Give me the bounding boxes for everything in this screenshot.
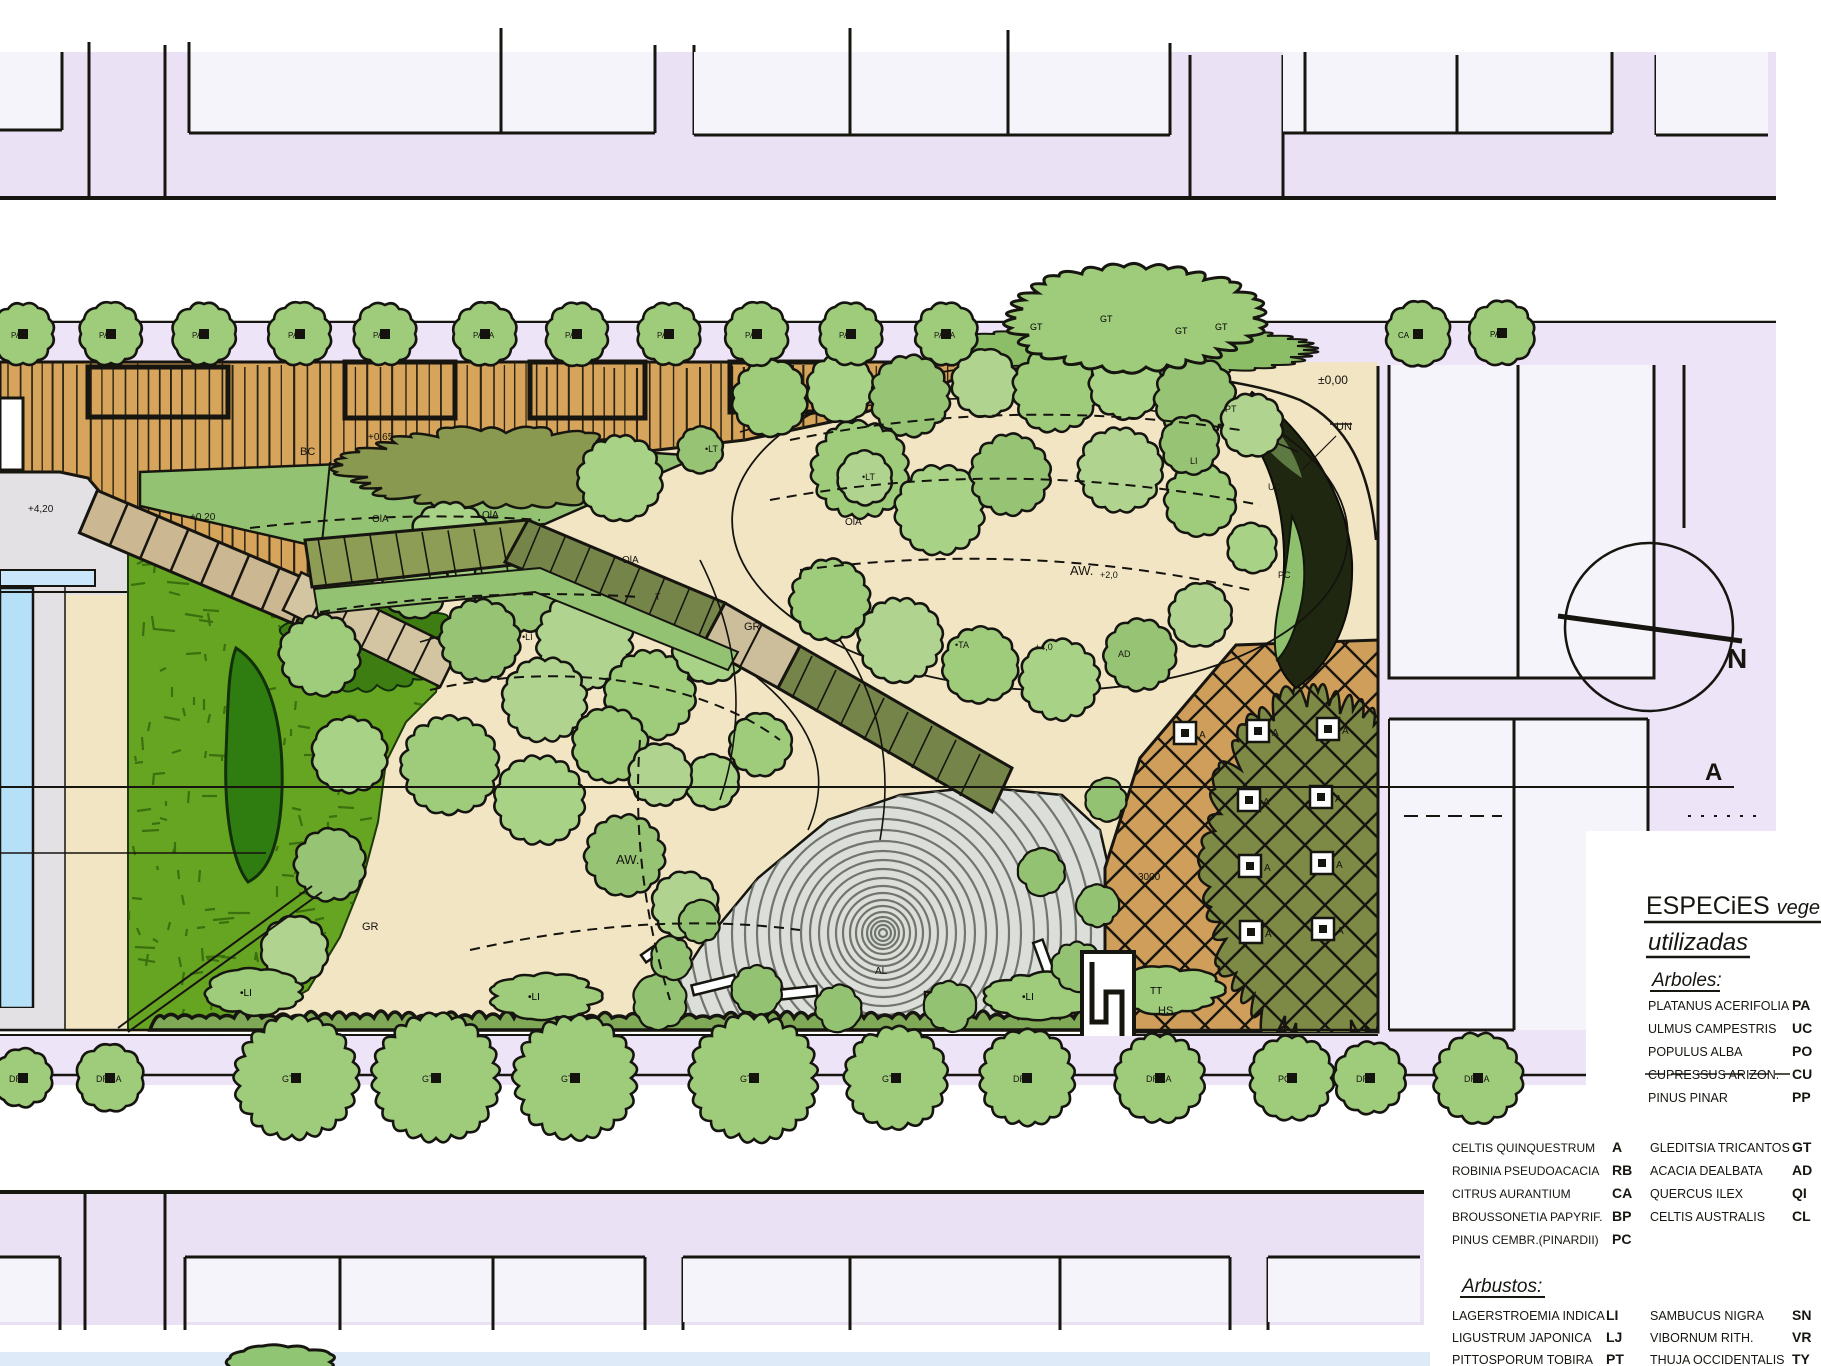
svg-text:GR: GR: [744, 621, 761, 633]
svg-text:SN: SN: [1792, 1307, 1811, 1323]
svg-text:GT: GT: [1100, 314, 1113, 324]
svg-text:VR: VR: [1792, 1329, 1811, 1345]
svg-text:PA: PA: [1490, 330, 1501, 339]
svg-text:GLEDITSIA TRICANTOS: GLEDITSIA TRICANTOS: [1650, 1141, 1790, 1155]
svg-text:THUJA OCCIDENTALIS: THUJA OCCIDENTALIS: [1650, 1353, 1785, 1366]
svg-text:AD: AD: [1792, 1162, 1812, 1178]
svg-text:CU: CU: [1792, 1066, 1812, 1082]
svg-text:HS: HS: [1158, 1005, 1173, 1017]
svg-text:T: T: [655, 592, 661, 602]
svg-text:OlA: OlA: [622, 555, 639, 566]
svg-text:PACA: PACA: [934, 331, 956, 340]
svg-text:A: A: [1263, 797, 1270, 808]
svg-text:Arbustos:: Arbustos:: [1461, 1276, 1542, 1297]
svg-text:PC: PC: [1612, 1231, 1631, 1247]
svg-text:PA: PA: [745, 331, 756, 340]
svg-text:DR: DR: [1013, 1074, 1026, 1084]
svg-text:UN: UN: [1336, 421, 1352, 433]
svg-text:PP: PP: [1792, 1089, 1811, 1105]
svg-text:utilizadas: utilizadas: [1648, 929, 1748, 956]
svg-text:VIBORNUM RITH.: VIBORNUM RITH.: [1650, 1331, 1753, 1345]
svg-text:CL: CL: [1792, 1208, 1811, 1224]
svg-text:PA: PA: [1792, 997, 1810, 1013]
svg-text:GT: GT: [882, 1074, 895, 1084]
svg-text:DR: DR: [9, 1074, 22, 1084]
svg-text:+0,65: +0,65: [368, 432, 394, 443]
svg-text:GT: GT: [422, 1074, 435, 1084]
svg-text:CA: CA: [1398, 331, 1410, 340]
svg-text:ACACIA DEALBATA: ACACIA DEALBATA: [1650, 1164, 1763, 1178]
svg-text:AW.: AW.: [1070, 563, 1093, 578]
svg-text:CITRUS AURANTIUM: CITRUS AURANTIUM: [1452, 1187, 1571, 1201]
svg-text:•TA: •TA: [955, 640, 969, 650]
svg-text:•LI: •LI: [1022, 992, 1034, 1003]
svg-text:PITTOSPORUM TOBIRA: PITTOSPORUM TOBIRA: [1452, 1353, 1594, 1366]
svg-text:A: A: [1335, 794, 1342, 805]
svg-text:A: A: [1705, 759, 1722, 786]
svg-text:OlA: OlA: [482, 510, 499, 521]
svg-text:LI: LI: [1606, 1307, 1618, 1323]
svg-text:A: A: [1612, 1139, 1622, 1155]
svg-text:CELTIS AUSTRALIS: CELTIS AUSTRALIS: [1650, 1210, 1765, 1224]
svg-text:GT: GT: [1175, 326, 1188, 336]
svg-text:A: A: [1264, 863, 1271, 874]
svg-text:PO: PO: [1792, 1043, 1812, 1059]
svg-text:PA: PA: [565, 331, 576, 340]
svg-text:3000: 3000: [1138, 872, 1161, 883]
svg-text:A: A: [1337, 926, 1344, 937]
svg-text:GT: GT: [1792, 1139, 1812, 1155]
svg-text:GT: GT: [1030, 322, 1043, 332]
svg-text:GR: GR: [362, 921, 379, 933]
svg-text:PA: PA: [288, 331, 299, 340]
svg-text:QUERCUS ILEX: QUERCUS ILEX: [1650, 1187, 1744, 1201]
svg-text:PA: PA: [192, 331, 203, 340]
svg-text:PA: PA: [657, 331, 668, 340]
svg-text:•LI: •LI: [240, 988, 252, 999]
svg-text:+2,0: +2,0: [1100, 570, 1118, 580]
svg-text:DRCA: DRCA: [96, 1074, 122, 1084]
svg-text:PO: PO: [1278, 1074, 1291, 1084]
svg-text:BC: BC: [300, 446, 315, 458]
svg-text:A: A: [1272, 728, 1279, 739]
svg-text:UC: UC: [1792, 1020, 1812, 1036]
svg-text:TT: TT: [1150, 986, 1162, 997]
svg-text:CA: CA: [1612, 1185, 1632, 1201]
svg-text:GT: GT: [282, 1074, 295, 1084]
svg-text:A: A: [1342, 726, 1349, 737]
svg-text:PA: PA: [373, 331, 384, 340]
svg-text:DRCA: DRCA: [1146, 1074, 1172, 1084]
svg-text:DRCA: DRCA: [1464, 1074, 1490, 1084]
svg-text:AD: AD: [1118, 649, 1131, 659]
svg-text:PA: PA: [839, 331, 850, 340]
svg-text:A: A: [1265, 929, 1272, 940]
svg-text:PT: PT: [1606, 1351, 1624, 1366]
svg-text:GT: GT: [1215, 322, 1228, 332]
svg-text:+4,20: +4,20: [28, 504, 54, 515]
svg-text:•LT: •LT: [705, 444, 718, 454]
svg-text:CELTIS QUINQUESTRUM: CELTIS QUINQUESTRUM: [1452, 1141, 1595, 1155]
svg-text:AW.: AW.: [616, 852, 639, 867]
svg-text:A: A: [1199, 730, 1206, 741]
svg-text:DR: DR: [1356, 1074, 1369, 1084]
svg-text:AL: AL: [875, 966, 888, 977]
svg-text:LI: LI: [1190, 456, 1198, 466]
svg-text:A: A: [1336, 860, 1343, 871]
svg-text:UC: UC: [1268, 482, 1281, 492]
svg-text:RB: RB: [1612, 1162, 1632, 1178]
svg-text:TY: TY: [1792, 1351, 1811, 1366]
svg-text:BROUSSONETIA PAPYRIF.: BROUSSONETIA PAPYRIF.: [1452, 1210, 1602, 1224]
svg-text:PINUS PINAR: PINUS PINAR: [1648, 1091, 1728, 1105]
svg-text:±0,00: ±0,00: [1318, 373, 1348, 387]
svg-text:POPULUS ALBA: POPULUS ALBA: [1648, 1045, 1743, 1059]
svg-text:PINUS CEMBR.(PINARDII): PINUS CEMBR.(PINARDII): [1452, 1233, 1599, 1247]
svg-text:•LI: •LI: [528, 992, 540, 1003]
svg-text:+0,20: +0,20: [190, 512, 216, 523]
svg-text:BP: BP: [1612, 1208, 1631, 1224]
svg-text:ULMUS CAMPESTRIS: ULMUS CAMPESTRIS: [1648, 1022, 1777, 1036]
svg-text:PA: PA: [99, 331, 110, 340]
svg-text:OlA: OlA: [845, 517, 862, 528]
svg-text:PC: PC: [1278, 570, 1291, 580]
svg-text:PLATANUS ACERIFOLIA: PLATANUS ACERIFOLIA: [1648, 999, 1790, 1013]
svg-text:GT: GT: [740, 1074, 753, 1084]
svg-text:GT: GT: [561, 1074, 574, 1084]
svg-text:ESPECiES vegetal: ESPECiES vegetal: [1646, 892, 1821, 920]
svg-text:N: N: [1727, 643, 1747, 674]
svg-text:Arboles:: Arboles:: [1651, 970, 1722, 991]
svg-text:PT: PT: [1225, 404, 1237, 414]
svg-text:LAGERSTROEMIA INDICA: LAGERSTROEMIA INDICA: [1452, 1309, 1605, 1323]
svg-text:LJ: LJ: [1606, 1329, 1622, 1345]
svg-text:PA: PA: [11, 331, 22, 340]
svg-text:QI: QI: [1792, 1185, 1807, 1201]
svg-text:•LI: •LI: [522, 632, 533, 642]
svg-text:CUPRESSUS ARIZON.: CUPRESSUS ARIZON.: [1648, 1068, 1779, 1082]
svg-text:SAMBUCUS NIGRA: SAMBUCUS NIGRA: [1650, 1309, 1765, 1323]
svg-text:OlA: OlA: [372, 514, 389, 525]
svg-text:LIGUSTRUM JAPONICA: LIGUSTRUM JAPONICA: [1452, 1331, 1592, 1345]
svg-text:ROBINIA PSEUDOACACIA: ROBINIA PSEUDOACACIA: [1452, 1164, 1599, 1178]
svg-text:PACA: PACA: [473, 331, 495, 340]
svg-text:+4,0: +4,0: [1035, 642, 1053, 652]
svg-text:•LT: •LT: [862, 472, 875, 482]
